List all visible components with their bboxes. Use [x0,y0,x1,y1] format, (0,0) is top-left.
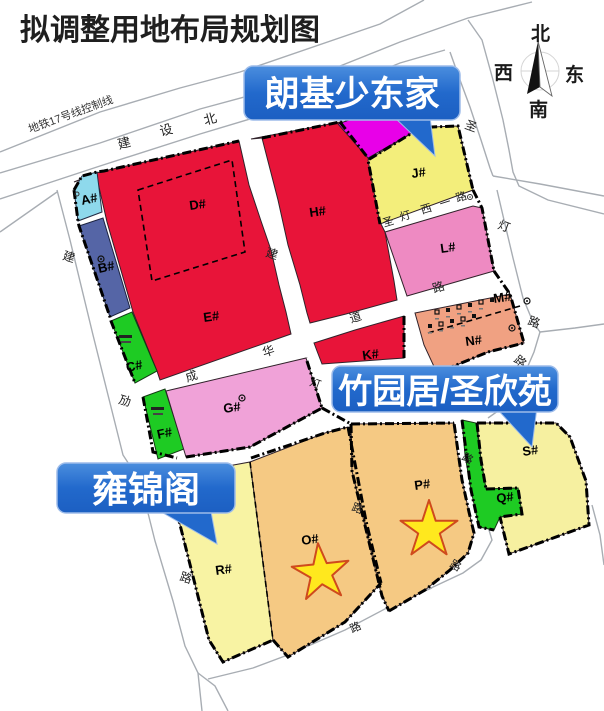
svg-text:L#: L# [439,239,457,256]
svg-text:北: 北 [531,23,550,45]
svg-text:雍锦阁: 雍锦阁 [92,469,200,510]
svg-text:E#: E# [202,308,221,325]
svg-text:西: 西 [494,63,513,84]
svg-text:竹园居/圣欣苑: 竹园居/圣欣苑 [338,373,551,411]
svg-text:朗基少东家: 朗基少东家 [264,75,439,114]
svg-text:R#: R# [214,561,233,578]
svg-text:K#: K# [361,346,380,363]
svg-text:H#: H# [308,203,327,220]
svg-text:南: 南 [529,99,548,121]
svg-text:东: 东 [565,63,584,86]
svg-text:G#: G# [222,399,242,416]
svg-text:拟调整用地布局规划图: 拟调整用地布局规划图 [20,14,320,47]
svg-text:Q#: Q# [495,489,515,506]
svg-text:J#: J# [410,164,427,181]
svg-text:M#: M# [492,288,513,305]
svg-text:D#: D# [188,196,207,213]
svg-text:N#: N# [464,332,483,349]
svg-text:P#: P# [413,476,432,493]
